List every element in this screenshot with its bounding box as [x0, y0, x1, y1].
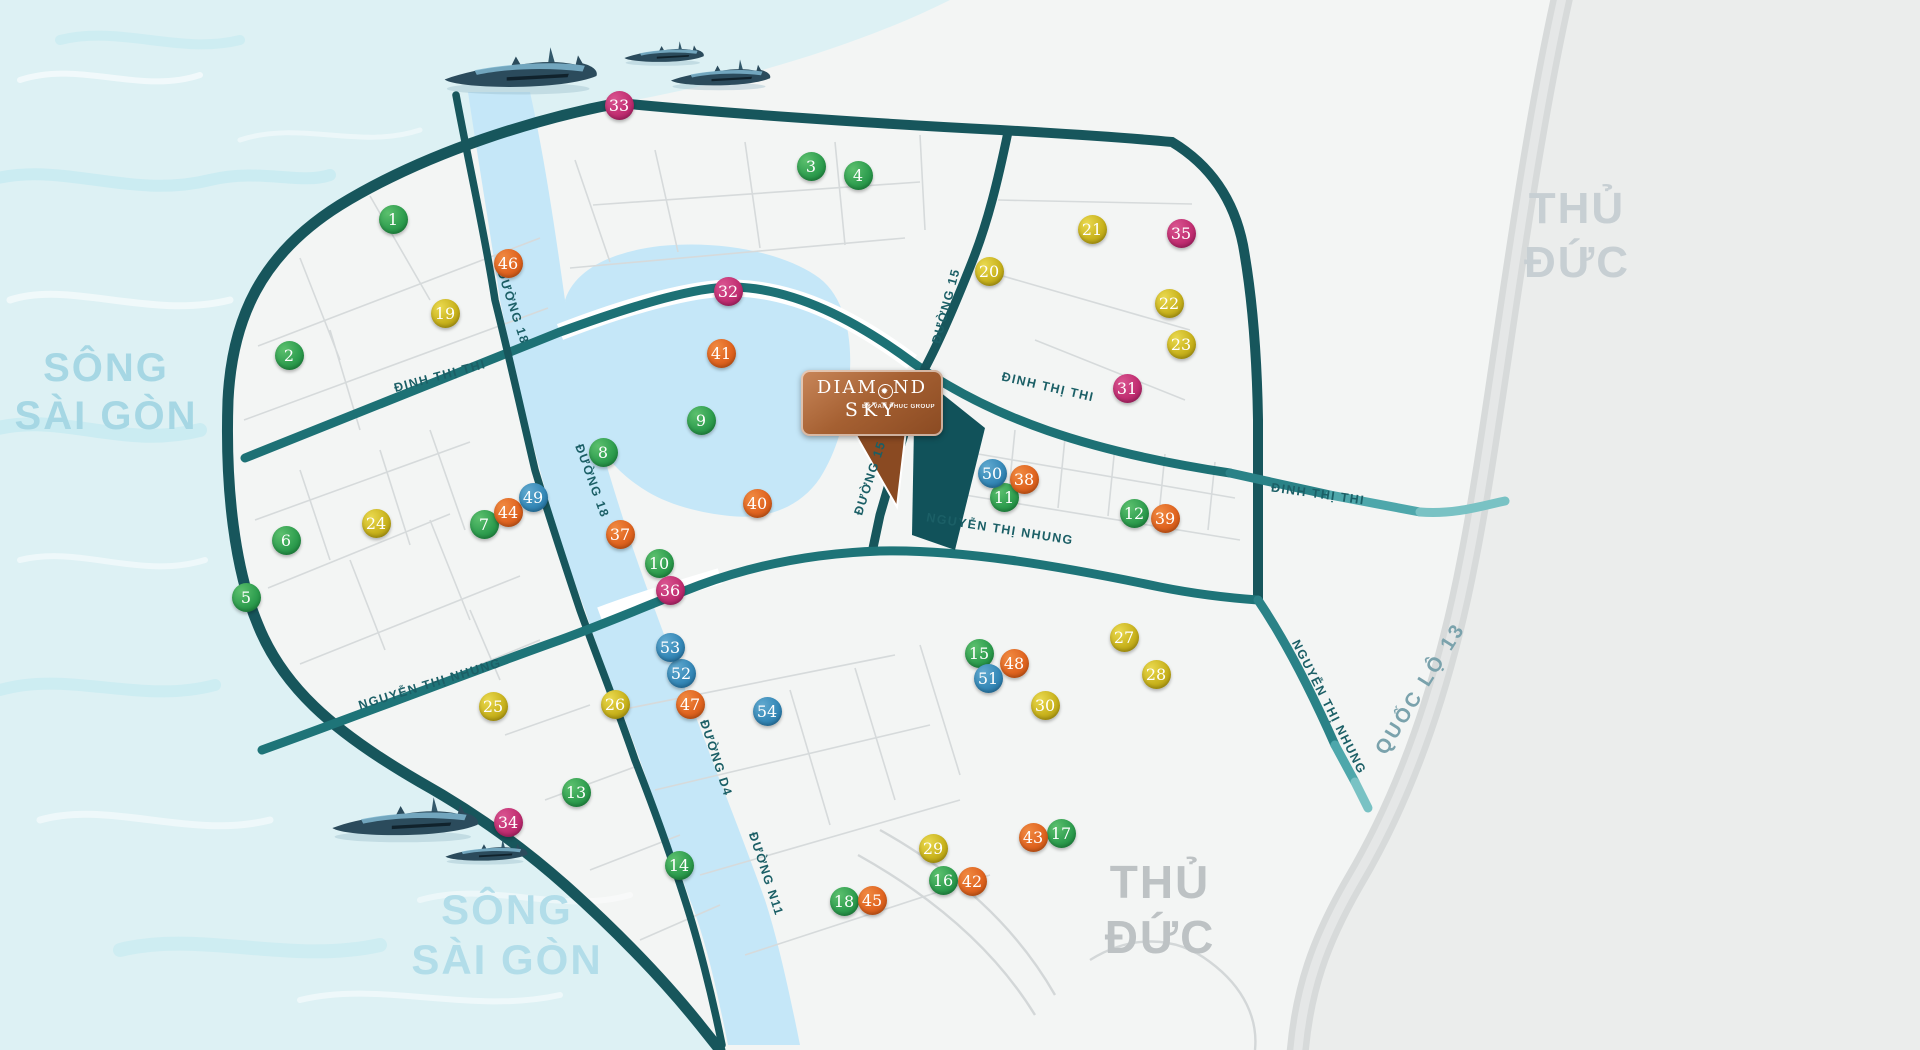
logo-line2: SKYBY VAN PHUC GROUP [801, 399, 943, 421]
map-marker-21[interactable]: 21 [1078, 215, 1107, 244]
map-marker-3[interactable]: 3 [797, 152, 826, 181]
map-marker-37[interactable]: 37 [606, 520, 635, 549]
map-marker-10[interactable]: 10 [645, 549, 674, 578]
map-marker-52[interactable]: 52 [667, 659, 696, 688]
map-marker-16[interactable]: 16 [929, 866, 958, 895]
map-marker-45[interactable]: 45 [858, 886, 887, 915]
logo-tagline: BY VAN PHUC GROUP [862, 396, 935, 418]
map-marker-44[interactable]: 44 [494, 498, 523, 527]
map-marker-47[interactable]: 47 [676, 690, 705, 719]
map-marker-49[interactable]: 49 [519, 483, 548, 512]
map-marker-33[interactable]: 33 [605, 91, 634, 120]
map-marker-25[interactable]: 25 [479, 692, 508, 721]
map-marker-29[interactable]: 29 [919, 834, 948, 863]
map-marker-31[interactable]: 31 [1113, 374, 1142, 403]
map-marker-17[interactable]: 17 [1047, 819, 1076, 848]
map-marker-50[interactable]: 50 [978, 459, 1007, 488]
map-marker-53[interactable]: 53 [656, 633, 685, 662]
diamond-sky-logo: DIAM✹ND SKYBY VAN PHUC GROUP [801, 370, 943, 436]
region-label-song-saigon-bottom: SÔNGSÀI GÒN [411, 885, 602, 985]
map-marker-18[interactable]: 18 [830, 887, 859, 916]
region-label-thu-duc-bottom: THỦĐỨC [1105, 855, 1216, 965]
map-marker-38[interactable]: 38 [1010, 465, 1039, 494]
region-label-song-saigon-left: SÔNGSÀI GÒN [15, 344, 198, 440]
map-marker-19[interactable]: 19 [431, 299, 460, 328]
map-marker-43[interactable]: 43 [1019, 823, 1048, 852]
map-marker-2[interactable]: 2 [275, 341, 304, 370]
map-marker-42[interactable]: 42 [958, 867, 987, 896]
map-marker-39[interactable]: 39 [1151, 504, 1180, 533]
map-marker-9[interactable]: 9 [687, 406, 716, 435]
location-map: DIAM✹ND SKYBY VAN PHUC GROUP SÔNGSÀI GÒN… [0, 0, 1920, 1050]
map-marker-41[interactable]: 41 [707, 339, 736, 368]
map-marker-46[interactable]: 46 [494, 249, 523, 278]
map-marker-13[interactable]: 13 [562, 778, 591, 807]
region-label-thu-duc-top: THỦĐỨC [1524, 182, 1630, 290]
map-marker-12[interactable]: 12 [1120, 499, 1149, 528]
map-marker-8[interactable]: 8 [589, 438, 618, 467]
map-marker-51[interactable]: 51 [974, 664, 1003, 693]
map-marker-48[interactable]: 48 [1000, 649, 1029, 678]
map-marker-22[interactable]: 22 [1155, 289, 1184, 318]
map-marker-54[interactable]: 54 [753, 697, 782, 726]
map-marker-34[interactable]: 34 [494, 808, 523, 837]
map-marker-28[interactable]: 28 [1142, 660, 1171, 689]
map-marker-40[interactable]: 40 [743, 489, 772, 518]
map-marker-20[interactable]: 20 [975, 257, 1004, 286]
map-marker-32[interactable]: 32 [714, 277, 743, 306]
map-marker-36[interactable]: 36 [656, 576, 685, 605]
map-marker-6[interactable]: 6 [272, 526, 301, 555]
map-marker-4[interactable]: 4 [844, 161, 873, 190]
map-marker-26[interactable]: 26 [601, 690, 630, 719]
map-marker-1[interactable]: 1 [379, 205, 408, 234]
map-marker-35[interactable]: 35 [1167, 219, 1196, 248]
map-marker-5[interactable]: 5 [232, 583, 261, 612]
map-marker-14[interactable]: 14 [665, 851, 694, 880]
map-marker-24[interactable]: 24 [362, 509, 391, 538]
map-marker-27[interactable]: 27 [1110, 623, 1139, 652]
map-marker-30[interactable]: 30 [1031, 691, 1060, 720]
map-marker-23[interactable]: 23 [1167, 330, 1196, 359]
